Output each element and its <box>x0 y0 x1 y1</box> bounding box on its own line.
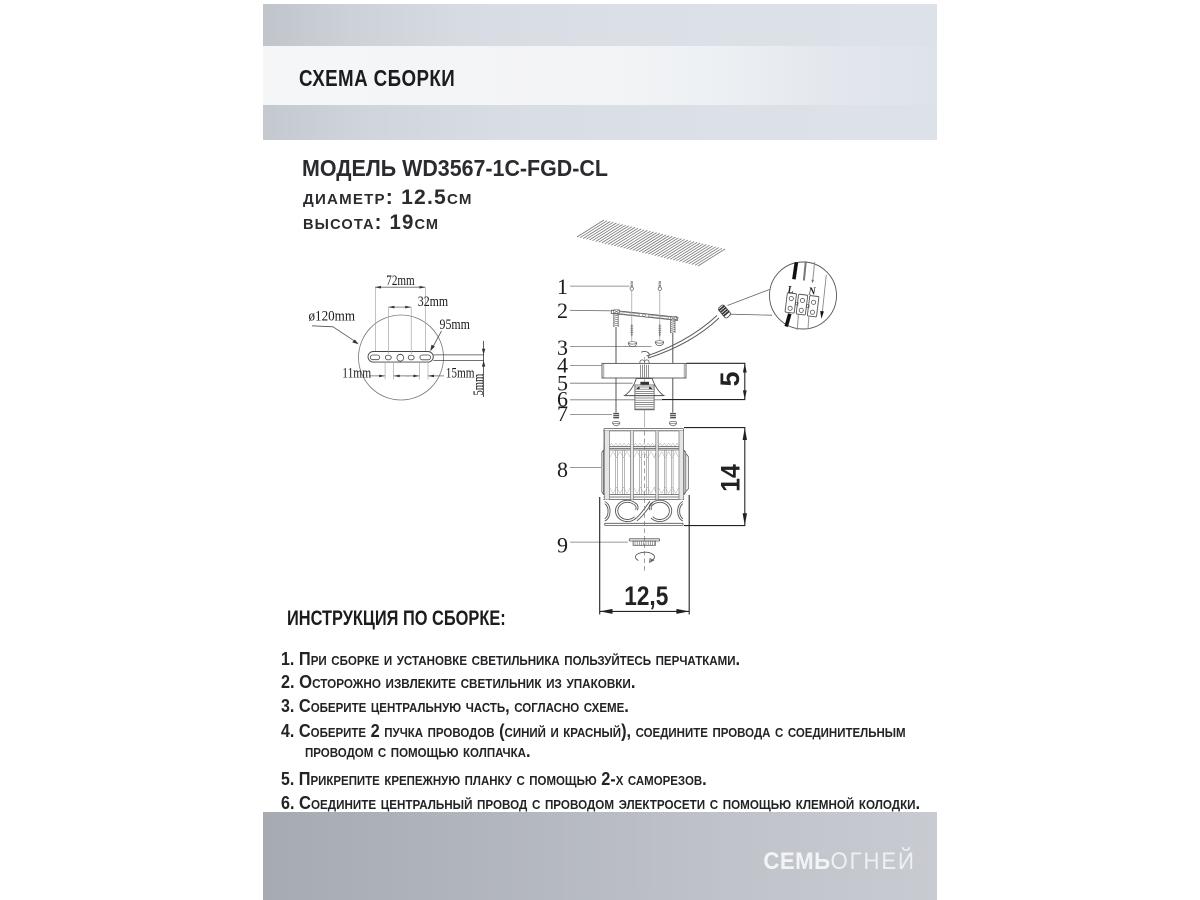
svg-text:32mm: 32mm <box>418 294 449 310</box>
svg-text:L: L <box>787 285 794 296</box>
svg-text:2: 2 <box>557 298 568 323</box>
svg-text:8: 8 <box>557 457 568 482</box>
svg-text:72mm: 72mm <box>386 273 415 289</box>
svg-text:N: N <box>808 287 817 298</box>
svg-text:14: 14 <box>716 464 746 492</box>
svg-text:15mm: 15mm <box>446 366 475 382</box>
svg-text:95mm: 95mm <box>440 317 471 333</box>
svg-text:5: 5 <box>715 371 745 386</box>
svg-text:1: 1 <box>557 274 568 299</box>
svg-text:ø120mm: ø120mm <box>309 309 356 325</box>
svg-text:7: 7 <box>557 401 568 426</box>
svg-text:9: 9 <box>557 533 568 558</box>
svg-text:12,5: 12,5 <box>624 581 668 611</box>
svg-text:11mm: 11mm <box>342 366 371 382</box>
